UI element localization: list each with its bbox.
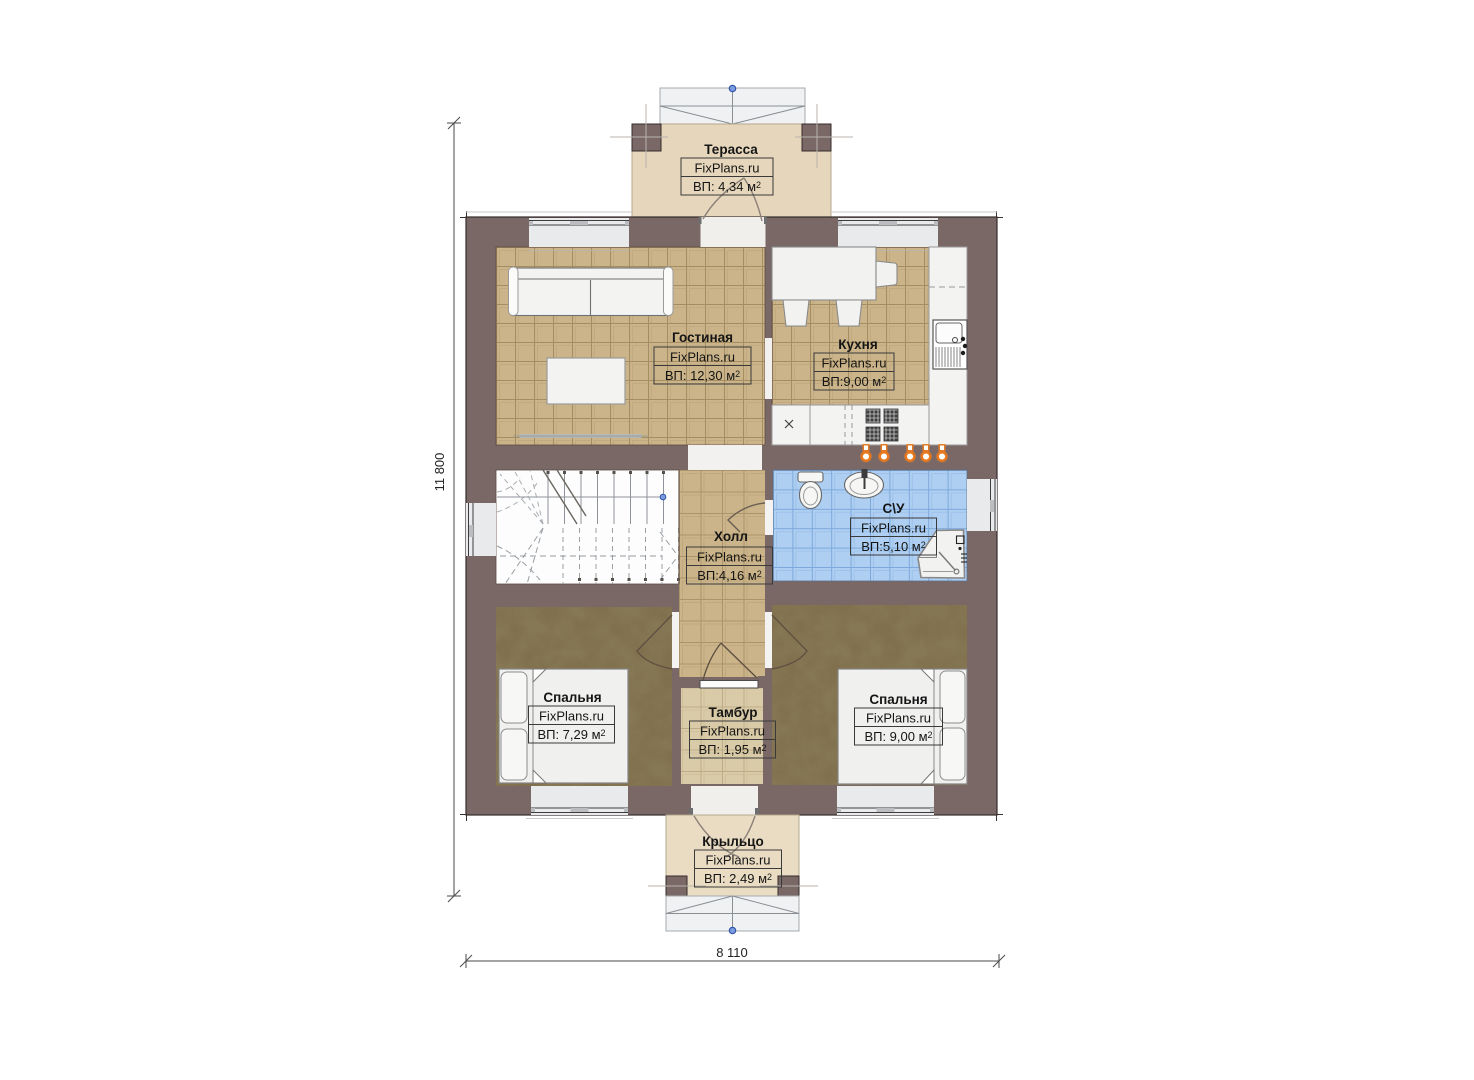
svg-text:FixPlans.ru: FixPlans.ru [705,853,770,868]
svg-text:11 800: 11 800 [432,453,447,492]
svg-text:ВП: 1,95 м2: ВП: 1,95 м2 [698,742,766,757]
svg-text:Гостиная: Гостиная [672,330,733,345]
svg-text:FixPlans.ru: FixPlans.ru [821,356,886,371]
svg-text:ВП:5,10 м2: ВП:5,10 м2 [861,539,926,554]
svg-text:FixPlans.ru: FixPlans.ru [697,550,762,565]
svg-text:С\У: С\У [883,501,906,516]
svg-text:Холл: Холл [714,529,748,544]
svg-text:ВП: 7,29 м2: ВП: 7,29 м2 [537,727,605,742]
svg-text:ВП:4,16 м2: ВП:4,16 м2 [697,568,762,583]
svg-text:ВП: 2,49 м2: ВП: 2,49 м2 [704,871,772,886]
svg-text:FixPlans.ru: FixPlans.ru [694,161,759,176]
svg-text:Спальня: Спальня [869,692,927,707]
svg-text:Кухня: Кухня [838,337,877,352]
svg-text:FixPlans.ru: FixPlans.ru [670,350,735,365]
svg-text:Тамбур: Тамбур [709,705,758,720]
svg-text:FixPlans.ru: FixPlans.ru [539,709,604,724]
svg-text:ВП: 9,00 м2: ВП: 9,00 м2 [864,729,932,744]
svg-text:ВП:9,00 м2: ВП:9,00 м2 [822,374,887,389]
svg-text:FixPlans.ru: FixPlans.ru [866,711,931,726]
svg-text:8 110: 8 110 [716,945,748,960]
svg-text:ВП: 4,34 м2: ВП: 4,34 м2 [693,179,761,194]
svg-text:ВП: 12,30 м2: ВП: 12,30 м2 [665,368,740,383]
svg-text:Крыльцо: Крыльцо [702,834,763,849]
svg-text:FixPlans.ru: FixPlans.ru [700,724,765,739]
svg-text:FixPlans.ru: FixPlans.ru [861,521,926,536]
svg-text:Спальня: Спальня [543,690,601,705]
svg-text:Терасса: Терасса [704,142,758,157]
